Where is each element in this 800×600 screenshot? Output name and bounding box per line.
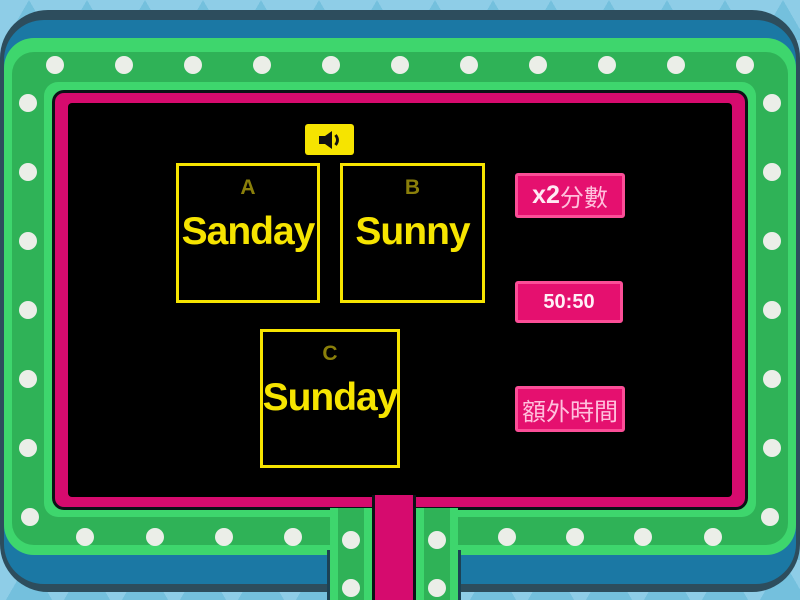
light-dot bbox=[763, 370, 781, 388]
gameshow-stage: A Sanday B Sunny C Sunday x2分數 50:50 額外時… bbox=[0, 0, 800, 600]
light-dot bbox=[215, 528, 233, 546]
option-c-text: Sunday bbox=[263, 376, 398, 420]
light-dot bbox=[19, 370, 37, 388]
light-dot bbox=[634, 528, 652, 546]
light-dot bbox=[284, 528, 302, 546]
option-a[interactable]: A Sanday bbox=[176, 163, 320, 303]
light-dot bbox=[21, 508, 39, 526]
fifty-fifty-button[interactable]: 50:50 bbox=[515, 281, 623, 323]
light-dot bbox=[115, 56, 133, 74]
fifty-fifty-label: 50:50 bbox=[543, 291, 594, 314]
light-dot bbox=[46, 56, 64, 74]
light-dot bbox=[391, 56, 409, 74]
light-dot bbox=[342, 531, 360, 549]
light-dot bbox=[253, 56, 271, 74]
light-dot bbox=[428, 531, 446, 549]
light-dot bbox=[763, 163, 781, 181]
pink-stand bbox=[372, 495, 416, 600]
light-dot bbox=[19, 232, 37, 250]
light-dot bbox=[460, 56, 478, 74]
light-dot bbox=[566, 528, 584, 546]
option-b-text: Sunny bbox=[355, 210, 469, 254]
light-dot bbox=[19, 94, 37, 112]
light-dot bbox=[598, 56, 616, 74]
light-dot bbox=[498, 528, 516, 546]
light-dot bbox=[19, 163, 37, 181]
option-b[interactable]: B Sunny bbox=[340, 163, 485, 303]
light-dot bbox=[736, 56, 754, 74]
extra-time-button[interactable]: 額外時間 bbox=[515, 386, 625, 432]
light-dot bbox=[763, 232, 781, 250]
option-a-text: Sanday bbox=[182, 210, 315, 254]
light-dot bbox=[761, 508, 779, 526]
option-c[interactable]: C Sunday bbox=[260, 329, 400, 468]
option-b-letter: B bbox=[405, 175, 420, 201]
light-dot bbox=[667, 56, 685, 74]
light-dot bbox=[763, 94, 781, 112]
option-a-letter: A bbox=[240, 175, 255, 201]
option-c-letter: C bbox=[322, 341, 337, 367]
light-dot bbox=[19, 439, 37, 457]
light-dot bbox=[76, 528, 94, 546]
double-points-x2: x2 bbox=[532, 181, 560, 210]
light-dot bbox=[184, 56, 202, 74]
light-dot bbox=[322, 56, 340, 74]
light-dot bbox=[763, 439, 781, 457]
extra-time-label: 額外時間 bbox=[522, 392, 618, 427]
double-points-label: 分數 bbox=[560, 178, 608, 213]
light-dot bbox=[19, 301, 37, 319]
play-audio-button[interactable] bbox=[305, 124, 354, 155]
light-dot bbox=[704, 528, 722, 546]
speaker-icon bbox=[318, 130, 342, 150]
double-points-button[interactable]: x2分數 bbox=[515, 173, 625, 218]
light-dot bbox=[529, 56, 547, 74]
light-dot bbox=[146, 528, 164, 546]
light-dot bbox=[428, 579, 446, 597]
light-dot bbox=[342, 579, 360, 597]
light-dot bbox=[763, 301, 781, 319]
